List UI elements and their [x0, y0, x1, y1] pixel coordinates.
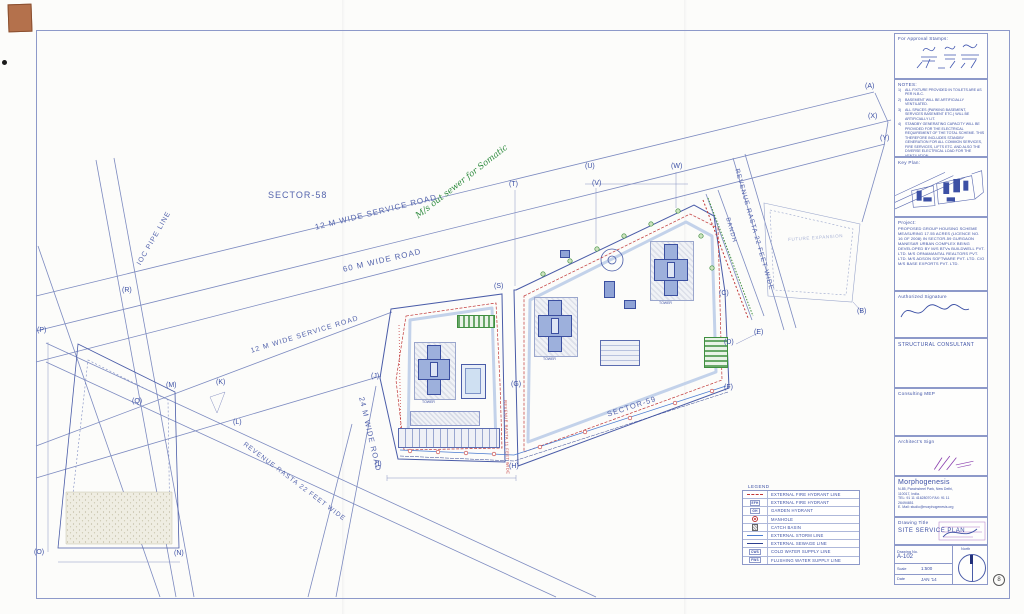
structural-consultant-label: STRUCTURAL CONSULTANT — [895, 339, 987, 348]
north-compass — [958, 554, 986, 582]
small-building — [560, 250, 570, 258]
sheet-revision-mark: 8 — [993, 574, 1005, 586]
legend-label: CATCH BASIN — [768, 525, 801, 530]
pond-parcel — [58, 344, 179, 548]
date-value: JAN '14 — [921, 577, 937, 582]
scanned-site-plan-sheet: SECTOR-5812 M WIDE SERVICE ROAD60 M WIDE… — [0, 0, 1024, 614]
plan-label: SECTOR-58 — [268, 190, 327, 200]
site-plan-drawing — [0, 0, 1024, 614]
future-expansion-parcel — [764, 203, 860, 302]
approval-stamps-box: For Approval Stamps: — [894, 33, 988, 79]
notes-title: NOTES: — [895, 80, 987, 87]
consulting-mep-box: Consulting MEP — [894, 388, 988, 436]
legend-table: EXTERNAL FIRE HYDRANT LINE EFH EXTERNAL … — [742, 490, 860, 565]
notes-box: NOTES: 1) ALL FIXTURE PROVIDED IN TOILET… — [894, 79, 988, 157]
survey-point-marker: (X) — [868, 113, 877, 120]
survey-point-marker: (G) — [511, 381, 521, 388]
drawing-info-left: Drawing No. A-102 Scale 1:500 Date JAN '… — [895, 546, 953, 584]
survey-point-marker: (C) — [719, 290, 729, 297]
survey-point-marker: (T) — [509, 181, 518, 188]
note-item: 4) STANDBY GENERATING CAPACITY WILL BE P… — [898, 122, 985, 157]
tower-core — [667, 262, 675, 278]
legend-symbol: CWS — [743, 548, 768, 555]
scale-value: 1:500 — [921, 566, 932, 571]
survey-point-marker: (Y) — [880, 135, 889, 142]
legend-row: CATCH BASIN — [743, 524, 859, 532]
notes-list: 1) ALL FIXTURE PROVIDED IN TOILETS ARE A… — [895, 87, 987, 157]
legend-label: COLD WATER SUPPLY LINE — [768, 549, 831, 554]
firm-name: Morphogenesis — [895, 477, 987, 486]
architect-sign-box: Architect's Sign — [894, 436, 988, 476]
survey-point-marker: (L) — [233, 419, 242, 426]
north-cell: North — [953, 546, 987, 584]
north-label: North — [953, 546, 987, 551]
legend-label: GARDEN HYDRANT — [768, 508, 813, 513]
tower-core — [551, 318, 559, 334]
survey-point-marker: (K) — [216, 379, 225, 386]
legend-label: EXTERNAL SEWAGE LINE — [768, 541, 827, 546]
legend-row: MANHOLE — [743, 516, 859, 524]
survey-point-marker: (V) — [592, 180, 601, 187]
services-block — [600, 340, 640, 366]
legend-row: FWS FLUSHING WATER SUPPLY LINE — [743, 557, 859, 564]
survey-point-marker: (R) — [122, 287, 132, 294]
approval-scribbles — [895, 41, 985, 75]
legend-row: EFH EXTERNAL FIRE HYDRANT — [743, 499, 859, 507]
lowrise-block — [398, 428, 500, 448]
firm-address: N-85, Panchsheel Park, New Delhi,110017,… — [895, 486, 987, 510]
small-building — [624, 300, 636, 309]
note-item: 2) BASEMENT WILL BE ARTIFICIALLY VENTILA… — [898, 98, 985, 107]
legend-row: EXTERNAL FIRE HYDRANT LINE — [743, 491, 859, 499]
project-text: PROPOSED GROUP HOUSING SCHEME MEASURING … — [895, 225, 987, 266]
architect-sign-label: Architect's Sign — [895, 437, 987, 444]
project-label: Project: — [895, 218, 987, 225]
note-item: 3) ALL SPACES (PARKING BASEMENT, SERVICE… — [898, 108, 985, 121]
legend-symbol — [743, 524, 768, 531]
structural-consultant-box: STRUCTURAL CONSULTANT — [894, 338, 988, 388]
firm-box: Morphogenesis N-85, Panchsheel Park, New… — [894, 476, 988, 517]
drawing-no: A-102 — [895, 554, 913, 560]
legend-row: CWS COLD WATER SUPPLY LINE — [743, 548, 859, 556]
approval-stamps-label: For Approval Stamps: — [895, 34, 987, 41]
legend-label: EXTERNAL FIRE HYDRANT — [768, 500, 829, 505]
legend-symbol — [743, 491, 768, 498]
key-plan-label: Key Plan: — [895, 158, 987, 165]
authorized-signature-box: Authorized Signature — [894, 291, 988, 338]
legend-label: FLUSHING WATER SUPPLY LINE — [768, 558, 841, 563]
survey-point-marker: (Q) — [132, 398, 142, 405]
legend-label: EXTERNAL STORM LINE — [768, 533, 823, 538]
survey-point-marker: (B) — [857, 308, 866, 315]
survey-point-marker: (S) — [494, 283, 503, 290]
survey-point-marker: (J) — [371, 373, 379, 380]
tower-core — [430, 362, 438, 377]
legend-symbol — [743, 532, 768, 539]
survey-point-marker: (D) — [724, 339, 734, 346]
drawing-title-box: Drawing Title SITE SERVICE PLAN — [894, 517, 988, 545]
consulting-mep-label: Consulting MEP — [895, 389, 987, 396]
drawing-info-box: Drawing No. A-102 Scale 1:500 Date JAN '… — [894, 545, 988, 585]
swimming-pool-inner — [465, 368, 481, 394]
project-box: Project: PROPOSED GROUP HOUSING SCHEME M… — [894, 217, 988, 291]
survey-point-marker: (O) — [34, 549, 44, 556]
authorized-signature-label: Authorized Signature — [895, 292, 987, 299]
legend-symbol: FWS — [743, 557, 768, 564]
survey-point-marker: (A) — [865, 83, 874, 90]
survey-point-marker: (I) — [375, 461, 382, 468]
legend-label: EXTERNAL FIRE HYDRANT LINE — [768, 492, 841, 497]
note-item: 1) ALL FIXTURE PROVIDED IN TOILETS ARE A… — [898, 88, 985, 97]
address-line: E. Mail: studio@morphogenesis.org — [898, 505, 987, 510]
survey-point-marker: (H) — [509, 463, 519, 470]
survey-point-marker: (N) — [174, 550, 184, 557]
tower-label: TOWER — [543, 357, 556, 361]
legend-symbol: EFH — [743, 499, 768, 506]
survey-point-marker: (E) — [754, 329, 763, 336]
survey-point-marker: (W) — [671, 163, 682, 170]
survey-point-marker: (U) — [585, 163, 595, 170]
legend-row: GH GARDEN HYDRANT — [743, 507, 859, 515]
key-plan-drawing — [895, 165, 985, 213]
authorized-signature — [895, 299, 975, 325]
date-label: Date — [895, 577, 921, 581]
legend-symbol: GH — [743, 507, 768, 514]
key-plan-box: Key Plan: — [894, 157, 988, 217]
survey-point-marker: (P) — [37, 327, 46, 334]
scale-label: Scale — [895, 567, 921, 571]
survey-point-marker: (M) — [166, 382, 177, 389]
north-needle — [970, 555, 973, 564]
legend-title: LEGEND — [748, 484, 860, 489]
tower-label: TOWER — [422, 400, 435, 404]
tower-label: TOWER — [659, 301, 672, 305]
architect-stamp — [925, 449, 985, 473]
legend-label: MANHOLE — [768, 517, 793, 522]
legend-row: EXTERNAL SEWAGE LINE — [743, 540, 859, 548]
legend-symbol — [743, 516, 768, 523]
lawn-strip — [457, 315, 495, 328]
legend-symbol — [743, 540, 768, 547]
small-building — [604, 281, 615, 298]
title-approval-stamp — [937, 519, 988, 545]
lowrise-block — [410, 411, 480, 426]
legend-row: EXTERNAL STORM LINE — [743, 532, 859, 540]
legend: LEGEND EXTERNAL FIRE HYDRANT LINE EFH EX… — [742, 484, 860, 565]
survey-point-marker: (F) — [724, 384, 733, 391]
